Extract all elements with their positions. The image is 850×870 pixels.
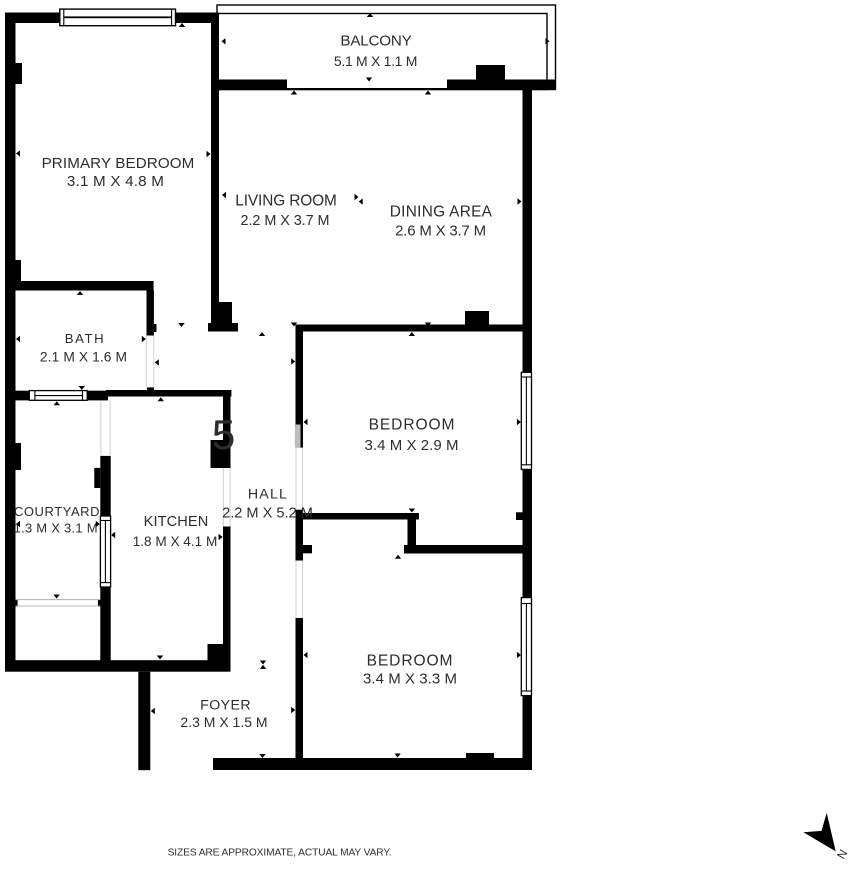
svg-text:KITCHEN: KITCHEN	[144, 514, 209, 530]
svg-text:2.2 M X 3.7 M: 2.2 M X 3.7 M	[241, 213, 330, 229]
svg-text:5.1 M X 1.1 M: 5.1 M X 1.1 M	[334, 53, 417, 69]
svg-text:BALCONY: BALCONY	[340, 33, 411, 50]
svg-text:3.4 M X 3.3 M: 3.4 M X 3.3 M	[363, 671, 457, 688]
svg-text:2.1 M X 1.6 M: 2.1 M X 1.6 M	[40, 350, 127, 365]
svg-text:LIVING ROOM: LIVING ROOM	[235, 193, 337, 210]
svg-text:BATH: BATH	[65, 331, 106, 346]
svg-text:2.6 M X 3.7 M: 2.6 M X 3.7 M	[395, 223, 486, 240]
svg-text:1.3 M X 3.1 M: 1.3 M X 3.1 M	[14, 520, 98, 535]
svg-text:3.1 M X 4.8 M: 3.1 M X 4.8 M	[67, 173, 164, 190]
svg-text:BEDROOM: BEDROOM	[369, 416, 456, 433]
svg-text:1.8 M X 4.1 M: 1.8 M X 4.1 M	[133, 534, 218, 549]
svg-text:2.2 M X 5.2 M: 2.2 M X 5.2 M	[222, 506, 313, 522]
svg-text:BEDROOM: BEDROOM	[367, 653, 454, 670]
svg-text:COURTYARD: COURTYARD	[14, 504, 100, 519]
svg-text:FOYER: FOYER	[200, 698, 251, 714]
svg-text:DINING AREA: DINING AREA	[390, 204, 493, 221]
svg-text:3.4 M X 2.9 M: 3.4 M X 2.9 M	[364, 437, 458, 454]
svg-text:2.3 M X 1.5 M: 2.3 M X 1.5 M	[180, 714, 267, 730]
svg-text:PRIMARY BEDROOM: PRIMARY BEDROOM	[42, 155, 195, 172]
svg-text:SIZES ARE APPROXIMATE, ACTUAL: SIZES ARE APPROXIMATE, ACTUAL MAY VARY.	[168, 847, 392, 858]
svg-text:HALL: HALL	[248, 486, 288, 502]
svg-text:5: 5	[212, 411, 235, 458]
